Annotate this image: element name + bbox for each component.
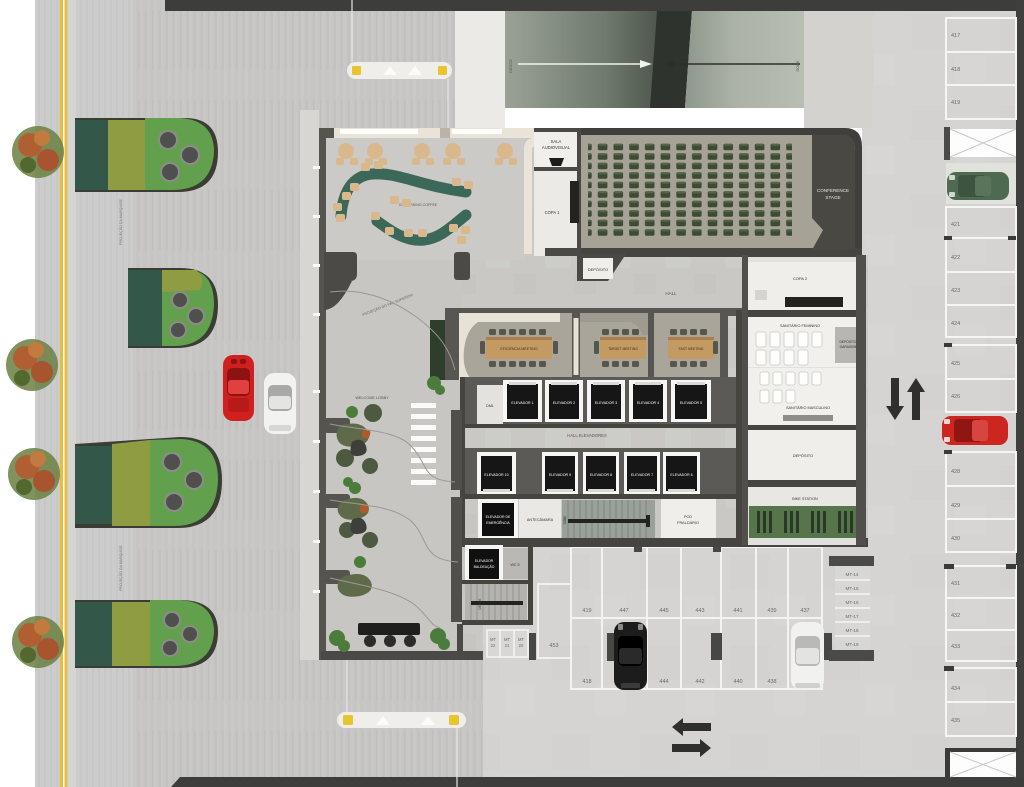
svg-text:SANITÁRIO MASCULINO: SANITÁRIO MASCULINO bbox=[786, 406, 830, 410]
svg-text:SOBE: SOBE bbox=[795, 60, 800, 71]
svg-text:421: 421 bbox=[951, 222, 960, 228]
svg-text:DEPÓSITO: DEPÓSITO bbox=[588, 267, 609, 272]
svg-text:429: 429 bbox=[951, 503, 960, 509]
svg-text:ANTECÂMARA: ANTECÂMARA bbox=[527, 517, 554, 522]
svg-text:SOBE: SOBE bbox=[563, 516, 567, 525]
svg-text:MT-18: MT-18 bbox=[845, 628, 858, 633]
svg-text:438: 438 bbox=[767, 679, 776, 685]
svg-text:ELEVADOR 2: ELEVADOR 2 bbox=[553, 401, 575, 405]
svg-text:418: 418 bbox=[951, 67, 960, 73]
svg-text:MT-19: MT-19 bbox=[845, 642, 858, 647]
svg-text:ELEVADOR 10: ELEVADOR 10 bbox=[484, 473, 508, 477]
svg-text:DML: DML bbox=[486, 404, 494, 408]
svg-text:COPA 1: COPA 1 bbox=[545, 210, 560, 215]
svg-text:433: 433 bbox=[951, 644, 960, 650]
svg-text:DEPÓSITO: DEPÓSITO bbox=[840, 339, 857, 344]
svg-text:ELEVADOR DE: ELEVADOR DE bbox=[486, 515, 511, 519]
svg-text:MT-16: MT-16 bbox=[845, 600, 858, 605]
svg-text:445: 445 bbox=[659, 608, 668, 614]
svg-text:444: 444 bbox=[659, 679, 668, 685]
svg-text:428: 428 bbox=[951, 469, 960, 475]
svg-text:ELEVADOR 6: ELEVADOR 6 bbox=[670, 473, 692, 477]
svg-text:AUDIOVISUAL: AUDIOVISUAL bbox=[542, 145, 571, 150]
svg-text:MT: MT bbox=[518, 637, 524, 642]
svg-text:PROJEÇÃO DA MARQUISE: PROJEÇÃO DA MARQUISE bbox=[118, 199, 123, 245]
svg-text:DESCE: DESCE bbox=[508, 59, 513, 73]
svg-text:ELEVADOR 4: ELEVADOR 4 bbox=[637, 401, 659, 405]
svg-text:22: 22 bbox=[491, 643, 496, 648]
svg-text:GARAGEM: GARAGEM bbox=[840, 345, 857, 349]
svg-text:PROJEÇÃO DA MARQUISE: PROJEÇÃO DA MARQUISE bbox=[118, 545, 123, 591]
svg-text:PCD: PCD bbox=[684, 515, 692, 519]
svg-text:425: 425 bbox=[951, 361, 960, 367]
svg-text:FRALDÁRIO: FRALDÁRIO bbox=[677, 521, 699, 525]
svg-text:SANITÁRIO FEMININO: SANITÁRIO FEMININO bbox=[780, 324, 820, 328]
svg-text:419: 419 bbox=[951, 100, 960, 106]
svg-text:437: 437 bbox=[800, 608, 809, 614]
svg-text:CONFERENCE: CONFERENCE bbox=[817, 188, 849, 193]
svg-text:WELCOME LOBBY: WELCOME LOBBY bbox=[355, 396, 389, 400]
svg-text:ELEVADOR 3: ELEVADOR 3 bbox=[595, 401, 617, 405]
svg-text:BIKE STATION: BIKE STATION bbox=[792, 497, 818, 501]
svg-text:WC 5: WC 5 bbox=[511, 563, 520, 567]
svg-text:HALL ELEVADORES: HALL ELEVADORES bbox=[567, 433, 607, 438]
svg-text:422: 422 bbox=[951, 255, 960, 261]
svg-text:434: 434 bbox=[951, 686, 960, 692]
svg-text:FAST MEETING: FAST MEETING bbox=[679, 347, 704, 351]
svg-text:432: 432 bbox=[951, 613, 960, 619]
svg-text:426: 426 bbox=[951, 394, 960, 400]
svg-text:MT-15: MT-15 bbox=[845, 586, 858, 591]
svg-text:ELEVADOR 9: ELEVADOR 9 bbox=[549, 473, 571, 477]
svg-text:20: 20 bbox=[519, 643, 524, 648]
svg-text:447: 447 bbox=[619, 608, 628, 614]
svg-text:EFICIÊNCIA MEETING: EFICIÊNCIA MEETING bbox=[500, 346, 538, 351]
svg-text:ELEVADOR 5: ELEVADOR 5 bbox=[680, 401, 702, 405]
svg-text:443: 443 bbox=[695, 608, 704, 614]
svg-text:ELEVADOR 8: ELEVADOR 8 bbox=[590, 473, 612, 477]
svg-text:HALL: HALL bbox=[665, 291, 677, 296]
svg-text:ELEVADOR 1: ELEVADOR 1 bbox=[511, 401, 533, 405]
svg-text:DEPÓSITO: DEPÓSITO bbox=[793, 453, 814, 458]
svg-text:COPA 2: COPA 2 bbox=[793, 276, 808, 281]
svg-text:ELEVADOR 7: ELEVADOR 7 bbox=[631, 473, 653, 477]
svg-text:423: 423 bbox=[951, 288, 960, 294]
svg-text:MT-17: MT-17 bbox=[845, 614, 858, 619]
svg-text:MT: MT bbox=[504, 637, 510, 642]
svg-text:DESCE: DESCE bbox=[478, 599, 482, 610]
svg-text:430: 430 bbox=[951, 536, 960, 542]
svg-text:MT-14: MT-14 bbox=[845, 572, 858, 577]
svg-text:424: 424 bbox=[951, 321, 960, 327]
svg-text:442: 442 bbox=[695, 679, 704, 685]
svg-text:EMERGÊNCIA: EMERGÊNCIA bbox=[486, 520, 510, 525]
svg-text:441: 441 bbox=[733, 608, 742, 614]
svg-text:BALDEAÇÃO: BALDEAÇÃO bbox=[474, 564, 495, 569]
svg-text:21: 21 bbox=[505, 643, 510, 648]
svg-text:418: 418 bbox=[582, 679, 591, 685]
svg-text:439: 439 bbox=[767, 608, 776, 614]
svg-text:ELEVADOR: ELEVADOR bbox=[475, 559, 494, 563]
svg-text:419: 419 bbox=[582, 608, 591, 614]
svg-text:STAGE: STAGE bbox=[825, 195, 840, 200]
svg-text:431: 431 bbox=[951, 581, 960, 587]
svg-text:417: 417 bbox=[951, 33, 960, 39]
svg-text:440: 440 bbox=[733, 679, 742, 685]
svg-text:435: 435 bbox=[951, 718, 960, 724]
svg-text:SALA: SALA bbox=[551, 139, 562, 144]
svg-text:MT: MT bbox=[490, 637, 496, 642]
svg-text:453: 453 bbox=[549, 643, 558, 649]
svg-text:TARGET MEETING: TARGET MEETING bbox=[608, 347, 638, 351]
